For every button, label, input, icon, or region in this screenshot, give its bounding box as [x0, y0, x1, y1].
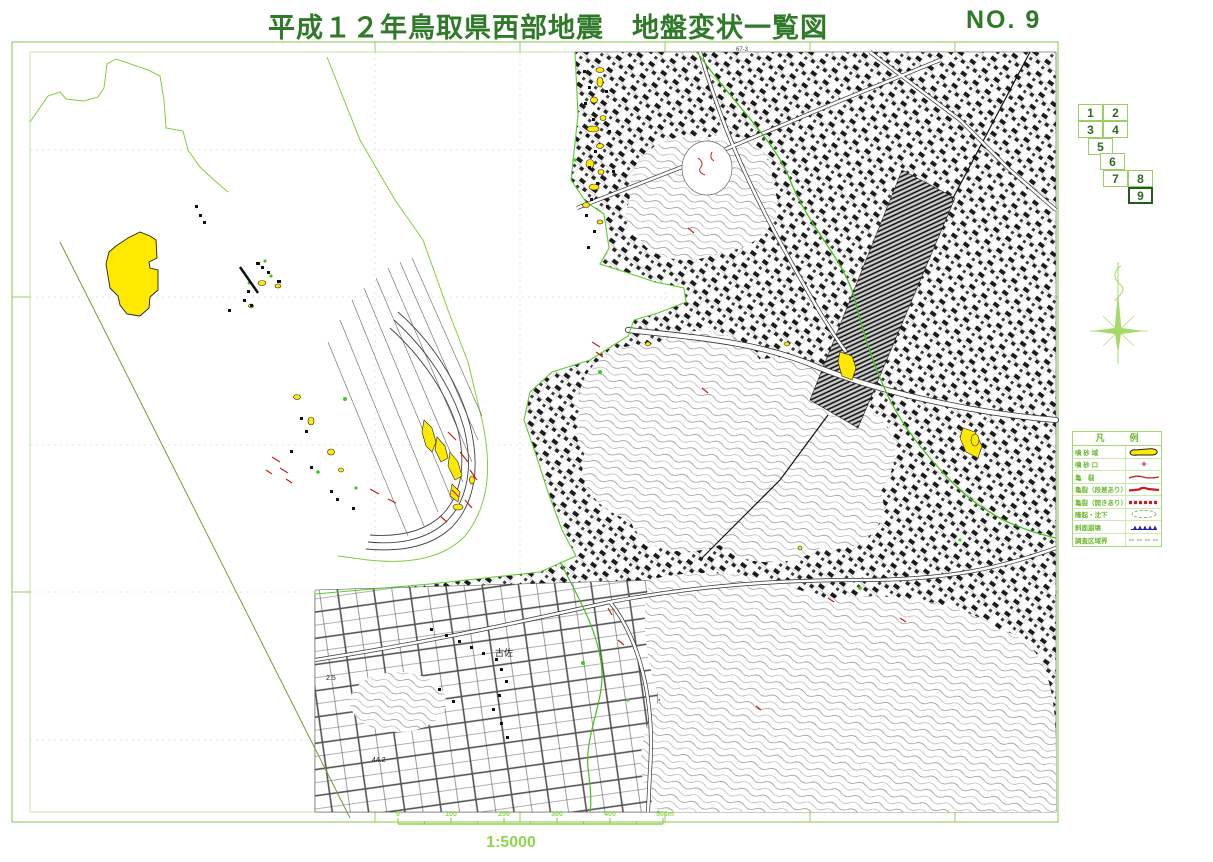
survey-boundary-icon	[1125, 534, 1161, 547]
crack-open-icon	[1125, 496, 1161, 508]
slope-failure-icon	[1125, 521, 1161, 533]
legend-box: 凡 例 噴 砂 域噴 砂 口亀 裂亀裂（段差あり）亀裂（開きあり）隆起・沈下斜面…	[1072, 431, 1162, 547]
crack-step-icon	[1125, 484, 1161, 496]
legend-row-crack: 亀 裂	[1073, 471, 1161, 484]
elevation-label-1: 44.2	[372, 757, 386, 764]
legend-row-crack-open: 亀裂（開きあり）	[1073, 496, 1161, 509]
legend-row-label: 噴 砂 域	[1073, 446, 1125, 458]
legend-row-crack-step: 亀裂（段差あり）	[1073, 484, 1161, 497]
elevation-label-2: 2.5	[326, 675, 336, 682]
legend-row-label: 調査区域界	[1073, 534, 1125, 547]
legend-title: 凡 例	[1073, 432, 1161, 446]
map-canvas: 67-3	[0, 0, 1213, 862]
pond	[682, 141, 732, 195]
legend-row-label: 亀裂（段差あり）	[1073, 484, 1125, 496]
legend-row-label: 亀裂（開きあり）	[1073, 496, 1125, 508]
scale-bar: 0 100 200 300 400 500m 1:5000	[396, 811, 674, 851]
uplift-subsidence-icon	[1125, 509, 1161, 521]
legend-row-sand-vent: 噴 砂 口	[1073, 459, 1161, 472]
legend-row-label: 隆起・沈下	[1073, 509, 1125, 521]
sand-vent-icon	[1125, 459, 1161, 471]
legend-row-label: 噴 砂 口	[1073, 459, 1125, 471]
scale-tick-label: 0	[396, 811, 400, 818]
legend-row-label: 斜面崩壊	[1073, 521, 1125, 533]
scale-tick-label: 500m	[656, 811, 674, 818]
legend-row-uplift-subsidence: 隆起・沈下	[1073, 509, 1161, 522]
crack-icon	[1125, 471, 1161, 483]
legend-row-slope-failure: 斜面崩壊	[1073, 521, 1161, 534]
scale-tick-label: 100	[445, 811, 457, 818]
scale-tick-label: 300	[551, 811, 563, 818]
scale-tick-label: 400	[604, 811, 616, 818]
legend-row-label: 亀 裂	[1073, 471, 1125, 483]
place-label: 古佐	[495, 647, 513, 658]
scale-ratio: 1:5000	[486, 834, 536, 851]
sand-boil-area-large	[106, 232, 158, 316]
scale-tick-label: 200	[498, 811, 510, 818]
sand-area-icon	[1125, 446, 1161, 458]
legend-row-survey-boundary: 調査区域界	[1073, 534, 1161, 547]
compass-rose-icon	[1090, 262, 1148, 364]
legend-row-sand-area: 噴 砂 域	[1073, 446, 1161, 459]
